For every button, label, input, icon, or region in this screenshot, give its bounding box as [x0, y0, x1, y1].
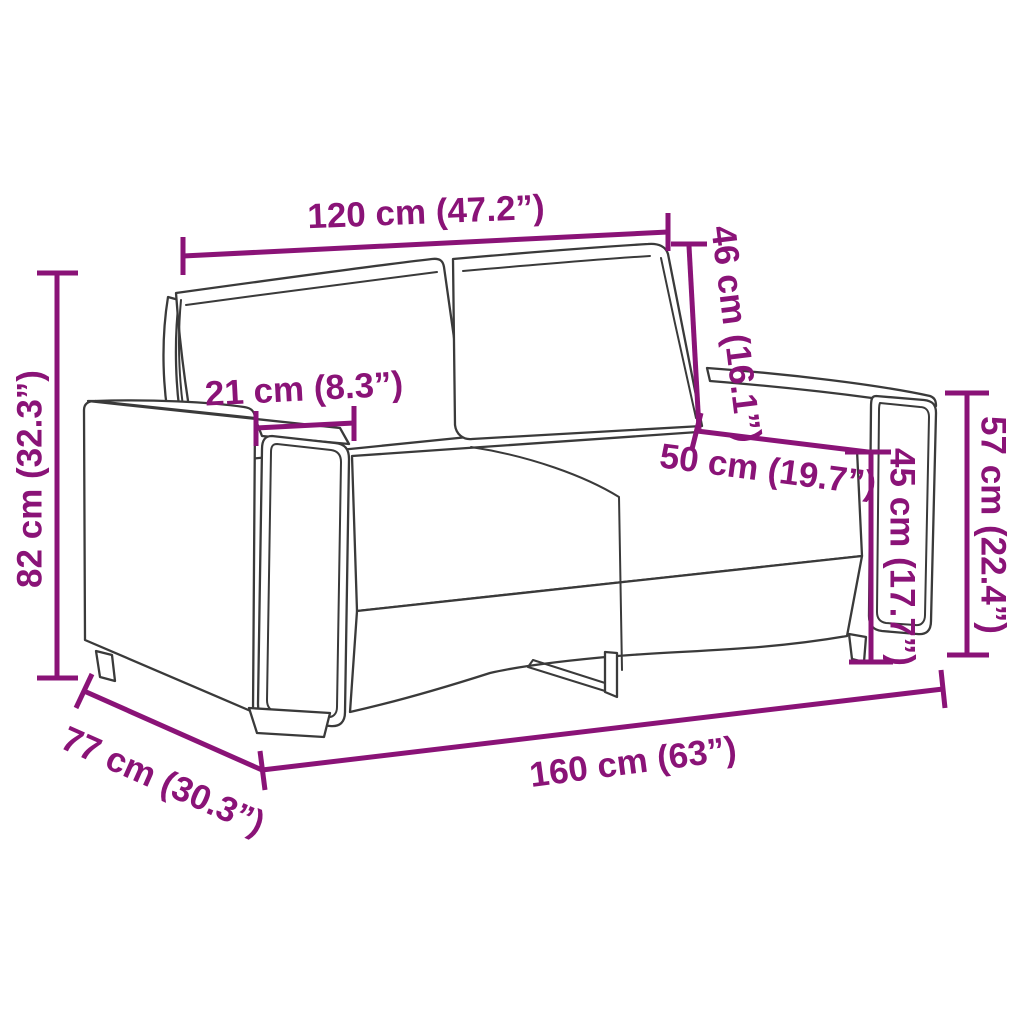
- dimension-tick: [260, 751, 265, 790]
- sofa-leg-center-sled: [605, 652, 617, 697]
- dimension-armrest-height: 57 cm (22.4”): [945, 393, 1013, 655]
- dimension-tick: [941, 670, 945, 708]
- dimension-label-overall-width: 160 cm (63”): [527, 729, 738, 795]
- diagram-canvas: 120 cm (47.2”) 46 cm (16.1”) 21 cm (8.3”…: [0, 0, 1024, 1024]
- dimension-label-back-cushion-height: 46 cm (16.1”): [703, 223, 768, 444]
- dimension-overall-height: 82 cm (32.3”): [11, 273, 79, 678]
- sofa-dimension-diagram: 120 cm (47.2”) 46 cm (16.1”) 21 cm (8.3”…: [0, 0, 1024, 1024]
- dimension-label-armrest-height: 57 cm (22.4”): [974, 416, 1013, 634]
- sofa-leg-back-left: [96, 651, 115, 681]
- dimension-label-overall-height: 82 cm (32.3”): [11, 370, 50, 588]
- dimension-label-back-width: 120 cm (47.2”): [307, 188, 546, 236]
- sofa-armrest-left-pad: [258, 436, 349, 726]
- dimension-label-overall-depth: 77 cm (30.3”): [56, 719, 271, 843]
- dimension-label-seat-height: 45 cm (17.7”): [883, 448, 922, 666]
- sofa-leg-front-right: [849, 634, 866, 662]
- sofa-leg-front-left: [249, 708, 330, 737]
